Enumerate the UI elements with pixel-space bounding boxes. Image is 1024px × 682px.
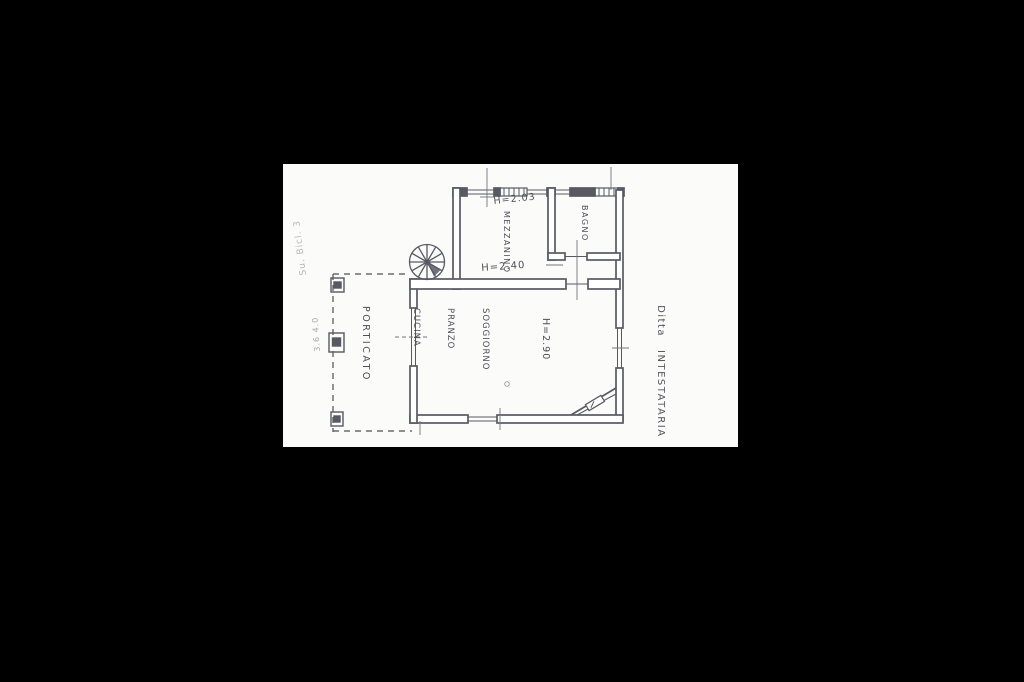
right-wall — [616, 190, 623, 420]
mezzanine-left-wall — [453, 188, 460, 289]
label-room-bagno: BAGNO — [580, 205, 589, 251]
label-owner-word1: Ditta — [655, 305, 666, 337]
top-wall — [453, 188, 624, 196]
spiral-staircase-icon — [410, 245, 445, 280]
scanned-page-background: H=2.03 MEZZANINO BAGNO H=2.40 SOGGIORNO … — [0, 0, 1024, 682]
label-owner: DittaINTESTATARIA — [644, 277, 677, 419]
label-room-living-dining-kitchen: SOGGIORNO PRANZO CUCINA — [387, 308, 514, 386]
corner-fireplace — [571, 388, 616, 415]
porch-pillars — [329, 278, 344, 426]
floor-plan-paper: H=2.03 MEZZANINO BAGNO H=2.40 SOGGIORNO … — [283, 164, 738, 447]
mezzanine-edge-wall — [410, 279, 620, 289]
label-pranzo: PRANZO — [444, 308, 456, 386]
label-cucina: CUCINA — [410, 308, 422, 386]
label-room-porticato: PORTICATO — [360, 306, 371, 394]
bottom-wall — [410, 415, 623, 423]
label-soggiorno: SOGGIORNO — [479, 308, 491, 386]
porch-pillar — [329, 333, 344, 352]
label-height-main-room: H=2.90 — [540, 318, 551, 366]
label-owner-word2: INTESTATARIA — [655, 350, 666, 438]
dimension-lines — [395, 167, 629, 435]
